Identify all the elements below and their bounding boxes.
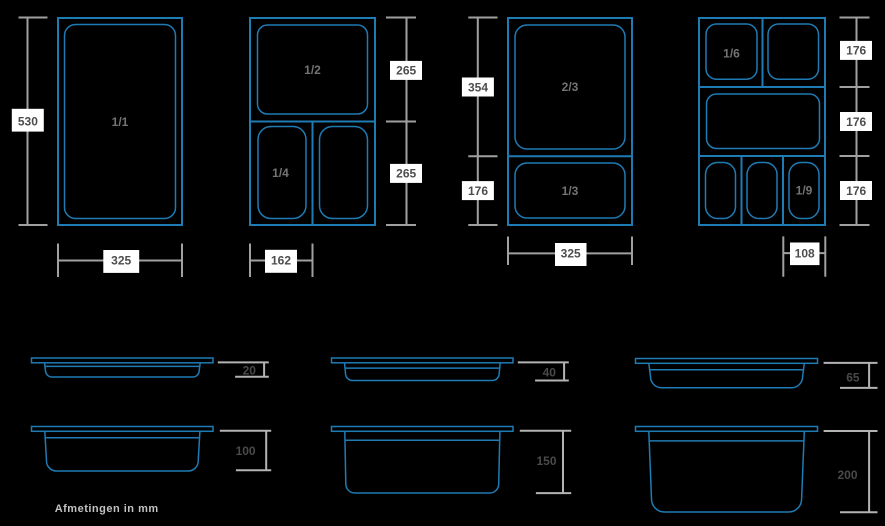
svg-text:162: 162 [271,253,291,267]
svg-text:354: 354 [468,80,488,94]
svg-text:65: 65 [846,370,860,384]
svg-text:325: 325 [561,247,581,261]
svg-text:1/1: 1/1 [112,115,129,129]
svg-text:100: 100 [236,444,256,458]
svg-text:1/3: 1/3 [562,184,579,198]
svg-text:2/3: 2/3 [562,80,579,94]
svg-text:176: 176 [846,44,866,58]
svg-text:176: 176 [468,184,488,198]
svg-text:Afmetingen in mm: Afmetingen in mm [55,503,159,515]
svg-text:1/2: 1/2 [304,63,321,77]
svg-text:40: 40 [543,366,557,380]
svg-text:265: 265 [396,167,416,181]
svg-text:176: 176 [846,184,866,198]
svg-text:265: 265 [396,64,416,78]
svg-text:1/4: 1/4 [272,166,289,180]
svg-text:530: 530 [18,114,38,128]
svg-text:1/6: 1/6 [723,47,740,61]
svg-text:200: 200 [837,468,857,482]
svg-text:1/9: 1/9 [796,184,813,198]
svg-text:150: 150 [536,454,556,468]
svg-text:325: 325 [111,253,131,267]
svg-text:108: 108 [795,246,815,260]
svg-text:176: 176 [846,115,866,129]
svg-text:20: 20 [243,364,257,378]
